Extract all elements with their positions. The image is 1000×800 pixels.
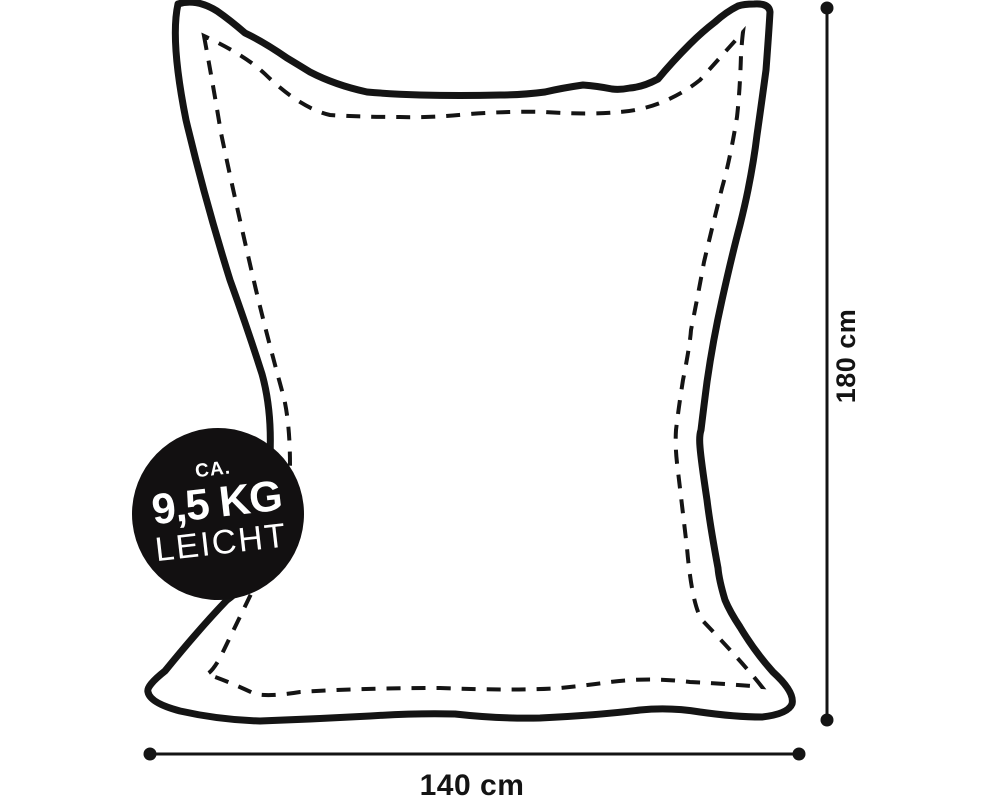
- height-line-top-dot: [821, 2, 834, 15]
- width-line-left-dot: [144, 748, 157, 761]
- beanbag-outline: [148, 2, 793, 721]
- width-dimension-label: 140 cm: [372, 769, 572, 800]
- beanbag-inner-seam-dashed: [204, 32, 762, 695]
- width-line-right-dot: [793, 748, 806, 761]
- beanbag-dimension-diagram: CA. 9,5 KG LEICHT 180 cm 140 cm: [0, 0, 1000, 800]
- height-dimension-label: 180 cm: [831, 296, 861, 416]
- height-line-bottom-dot: [821, 714, 834, 727]
